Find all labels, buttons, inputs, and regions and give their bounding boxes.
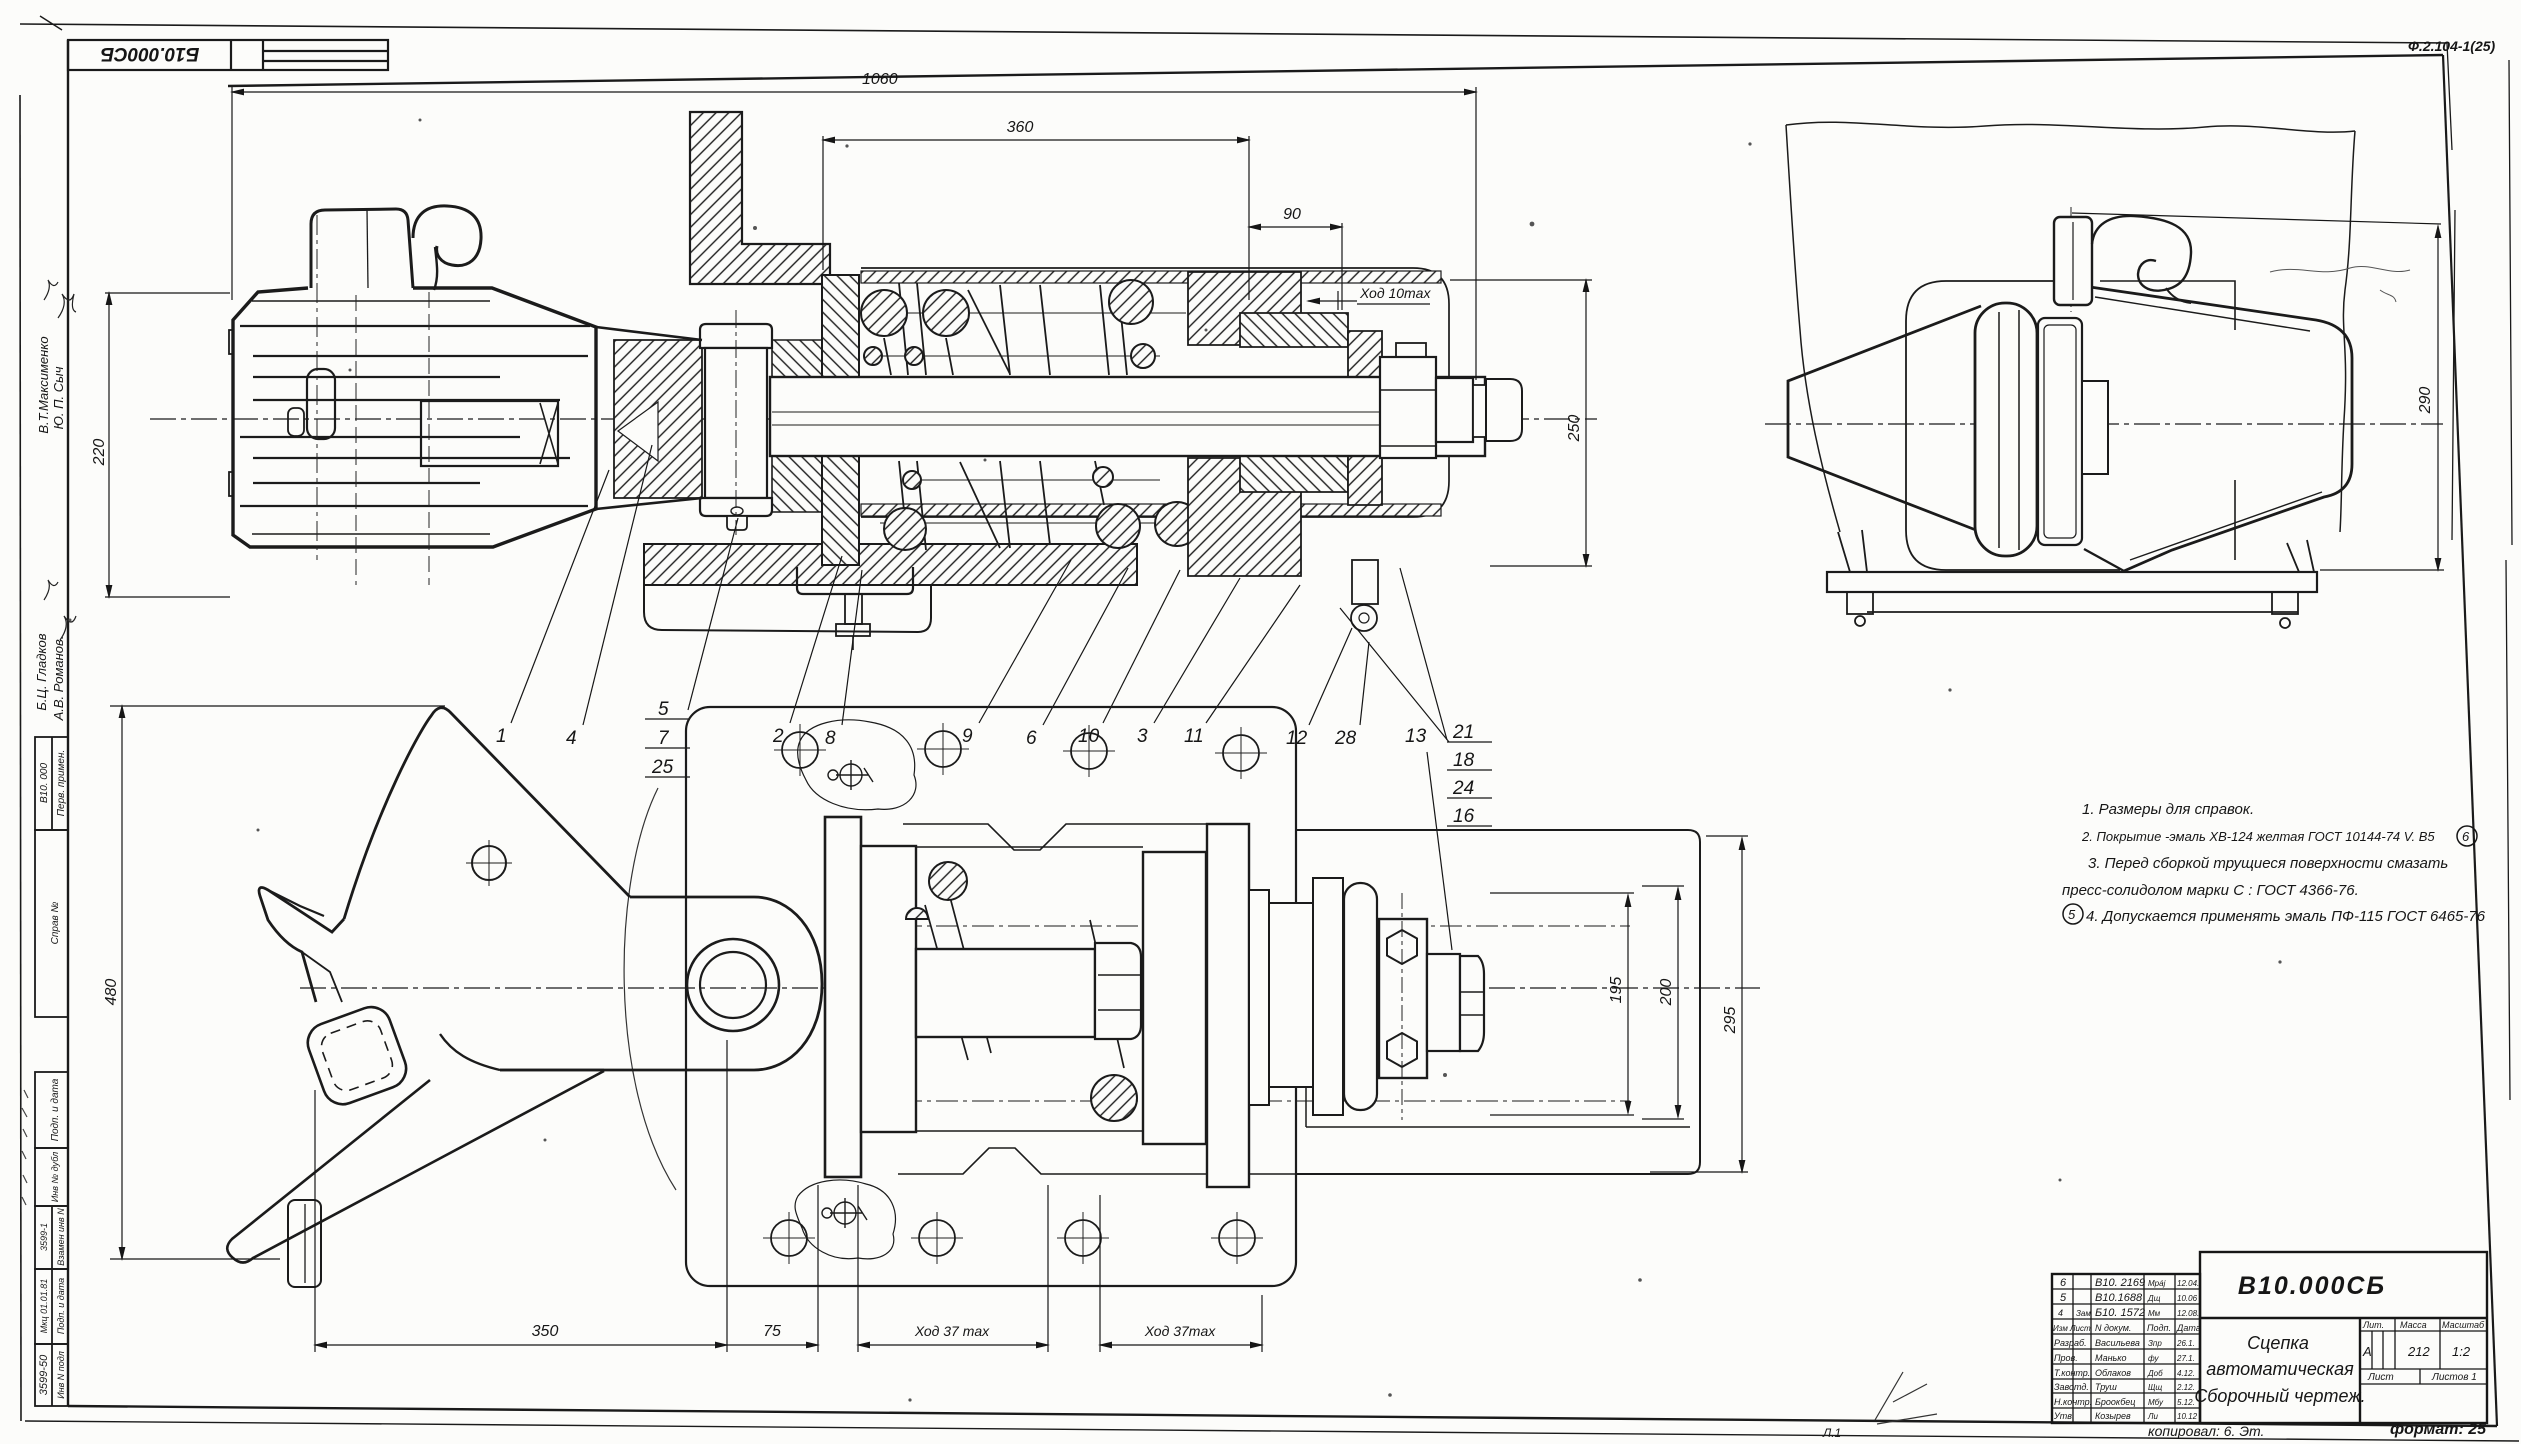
svg-text:Васильева: Васильева	[2095, 1338, 2140, 1348]
svg-text:В10.000СБ: В10.000СБ	[2238, 1272, 2386, 1300]
svg-text:Броокбец: Броокбец	[2095, 1397, 2135, 1407]
svg-text:Ю. П. Сыч: Ю. П. Сыч	[51, 366, 66, 429]
svg-text:480: 480	[103, 979, 120, 1006]
svg-text:21: 21	[1452, 722, 1474, 743]
svg-text:350: 350	[532, 1323, 559, 1340]
svg-text:16: 16	[1453, 806, 1475, 827]
svg-text:27.1.: 27.1.	[2176, 1354, 2195, 1363]
svg-text:250: 250	[1566, 415, 1583, 443]
svg-text:290: 290	[2417, 387, 2434, 415]
svg-text:11: 11	[1184, 726, 1204, 747]
svg-text:Зпр: Зпр	[2148, 1339, 2162, 1348]
svg-text:1:2: 1:2	[2452, 1344, 2471, 1359]
svg-text:Мбу: Мбу	[2148, 1398, 2164, 1407]
svg-text:Лит.: Лит.	[2362, 1320, 2384, 1330]
svg-text:4: 4	[566, 728, 577, 749]
svg-text:26.1.: 26.1.	[2176, 1339, 2195, 1348]
svg-text:Дщ: Дщ	[2147, 1294, 2161, 1303]
svg-text:Масса: Масса	[2400, 1320, 2427, 1330]
svg-text:Ход 37 max: Ход 37 max	[914, 1323, 990, 1339]
svg-text:копировал: 6. Эт.: копировал: 6. Эт.	[2148, 1423, 2264, 1439]
svg-text:Перв. примен.: Перв. примен.	[56, 750, 67, 816]
svg-text:Мкц 01.01.81: Мкц 01.01.81	[39, 1279, 49, 1333]
svg-text:1. Размеры для справок.: 1. Размеры для справок.	[2082, 801, 2254, 818]
svg-text:Изм Лист: Изм Лист	[2053, 1324, 2091, 1333]
svg-text:4: 4	[2058, 1308, 2063, 1318]
svg-text:Зам: Зам	[2076, 1309, 2091, 1318]
svg-text:Труш: Труш	[2095, 1382, 2117, 1392]
svg-text:Б10. 1572: Б10. 1572	[2095, 1307, 2145, 1319]
svg-text:Взамен инв N: Взамен инв N	[56, 1208, 66, 1266]
svg-text:75: 75	[763, 1323, 781, 1340]
svg-text:5: 5	[2068, 907, 2076, 922]
svg-text:3. Перед сборкой трущиеся п: 3. Перед сборкой трущиеся поверхности см…	[2088, 855, 2448, 872]
svg-text:Мм: Мм	[2148, 1309, 2161, 1318]
svg-text:Л.1: Л.1	[1822, 1426, 1841, 1440]
svg-text:10.06: 10.06	[2177, 1294, 2198, 1303]
svg-text:3599-50: 3599-50	[38, 1354, 50, 1395]
svg-text:автоматическая: автоматическая	[2206, 1359, 2354, 1379]
svg-text:Мpáj: Мpáj	[2148, 1279, 2166, 1288]
svg-text:Масштаб: Масштаб	[2442, 1320, 2485, 1330]
svg-text:Б10.000СБ: Б10.000СБ	[101, 43, 200, 64]
svg-text:Ф.2.104-1(25): Ф.2.104-1(25)	[2408, 38, 2496, 54]
svg-text:А: А	[2362, 1344, 2372, 1359]
svg-text:9: 9	[962, 726, 973, 747]
svg-text:4. Допускается применять эма: 4. Допускается применять эмаль ПФ-115 ГО…	[2086, 908, 2486, 925]
svg-text:Инв N подл: Инв N подл	[56, 1351, 66, 1399]
svg-text:Утв.: Утв.	[2053, 1411, 2074, 1421]
svg-text:1: 1	[496, 726, 507, 747]
svg-text:2. Покрытие -эмаль ХВ-124 желт: 2. Покрытие -эмаль ХВ-124 желтая ГОСТ 10…	[2081, 829, 2435, 844]
svg-text:200: 200	[1658, 979, 1675, 1007]
svg-text:пресс-солидолом марки С :: пресс-солидолом марки С : ГОСТ 4366-76.	[2062, 882, 2359, 899]
svg-text:Инв № дубл: Инв № дубл	[50, 1152, 60, 1202]
svg-text:10.12: 10.12	[2177, 1412, 2198, 1421]
svg-text:18: 18	[1453, 750, 1475, 771]
svg-text:Н.контр.: Н.контр.	[2054, 1397, 2092, 1407]
svg-text:Ход 10max: Ход 10max	[1359, 285, 1431, 301]
svg-text:Сборочный чертеж.: Сборочный чертеж.	[2194, 1386, 2365, 1406]
svg-text:Сцепка: Сцепка	[2247, 1333, 2309, 1353]
svg-text:5: 5	[2060, 1292, 2067, 1304]
svg-text:24: 24	[1452, 778, 1474, 799]
svg-text:6: 6	[1026, 728, 1037, 749]
svg-text:2.12.: 2.12.	[2176, 1383, 2195, 1392]
svg-text:7: 7	[658, 728, 670, 749]
svg-text:В.Т.Максименко: В.Т.Максименко	[36, 336, 51, 433]
svg-text:6: 6	[2462, 829, 2470, 844]
svg-text:8: 8	[825, 728, 836, 749]
svg-text:Козырев: Козырев	[2095, 1411, 2131, 1421]
svg-text:А.В. Романов.: А.В. Романов.	[51, 636, 66, 722]
svg-text:295: 295	[1722, 1007, 1739, 1035]
svg-text:N докум.: N докум.	[2095, 1323, 2131, 1333]
svg-text:В10.1688: В10.1688	[2095, 1292, 2143, 1304]
svg-text:3599-1: 3599-1	[39, 1223, 49, 1251]
svg-text:5.12.: 5.12.	[2177, 1398, 2195, 1407]
svg-text:Лист: Лист	[2367, 1372, 2394, 1383]
svg-text:25: 25	[651, 757, 674, 778]
svg-text:12.04.: 12.04.	[2177, 1279, 2199, 1288]
svg-text:фу: фу	[2148, 1354, 2160, 1363]
svg-text:Щщ: Щщ	[2148, 1383, 2162, 1392]
svg-text:Завотд.: Завотд.	[2054, 1382, 2089, 1392]
svg-text:12.08.: 12.08.	[2177, 1309, 2199, 1318]
svg-text:195: 195	[1608, 977, 1625, 1004]
svg-text:Листов 1: Листов 1	[2431, 1372, 2477, 1383]
svg-text:Пров.: Пров.	[2054, 1353, 2078, 1363]
svg-text:13: 13	[1405, 726, 1427, 747]
svg-text:Ход 37max: Ход 37max	[1144, 1323, 1216, 1339]
svg-text:Дата: Дата	[2176, 1323, 2201, 1333]
svg-text:1060: 1060	[862, 71, 898, 88]
svg-text:Доб: Доб	[2147, 1369, 2163, 1378]
svg-text:360: 360	[1007, 119, 1034, 136]
svg-text:Справ №: Справ №	[50, 901, 61, 944]
svg-text:Подп. и дата: Подп. и дата	[56, 1278, 66, 1334]
svg-text:Подп. и дата: Подп. и дата	[50, 1078, 61, 1141]
svg-text:6: 6	[2060, 1277, 2067, 1289]
svg-text:Облаков: Облаков	[2095, 1368, 2131, 1378]
svg-text:В10. 000: В10. 000	[39, 763, 50, 803]
svg-text:Манько: Манько	[2095, 1353, 2127, 1363]
svg-text:28: 28	[1334, 728, 1357, 749]
svg-text:5: 5	[658, 699, 669, 720]
svg-text:212: 212	[2407, 1344, 2430, 1359]
svg-text:В10. 2169: В10. 2169	[2095, 1277, 2145, 1289]
svg-text:Разраб.: Разраб.	[2054, 1338, 2087, 1348]
svg-text:90: 90	[1283, 206, 1301, 223]
svg-text:3: 3	[1137, 726, 1148, 747]
svg-text:Подп.: Подп.	[2147, 1323, 2171, 1333]
svg-text:Б.Ц. Гладков: Б.Ц. Гладков	[34, 633, 49, 710]
svg-text:Ли: Ли	[2147, 1412, 2158, 1421]
svg-text:220: 220	[91, 439, 108, 467]
svg-text:Т.контр.: Т.контр.	[2054, 1368, 2090, 1378]
svg-text:4.12.: 4.12.	[2177, 1369, 2195, 1378]
svg-text:формат: 25: формат: 25	[2390, 1421, 2487, 1438]
